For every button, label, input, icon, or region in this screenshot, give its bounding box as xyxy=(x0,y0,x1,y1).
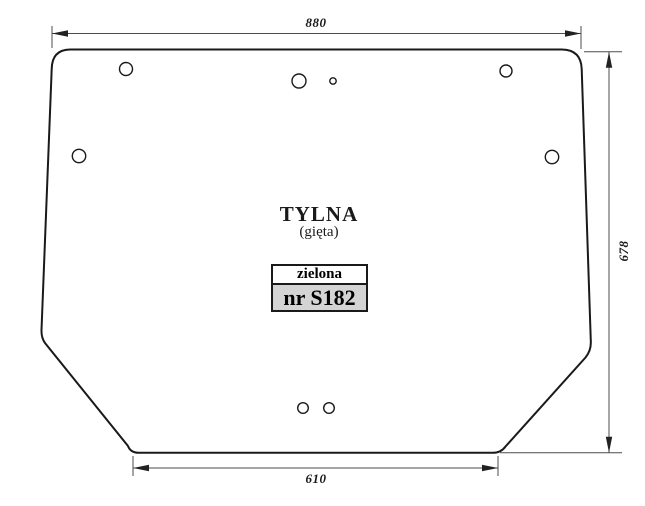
technical-drawing-page: 880 678 610 TYLNA (gięta) zielona nr S18… xyxy=(0,0,645,506)
mounting-hole xyxy=(298,403,309,414)
mounting-hole xyxy=(545,150,558,163)
dimension-width-bottom: 610 xyxy=(276,471,356,487)
mounting-hole xyxy=(500,65,512,77)
dimension-width-top: 880 xyxy=(276,15,356,31)
mounting-hole xyxy=(330,78,336,84)
pane-subtitle: (gięta) xyxy=(234,224,404,241)
mounting-hole xyxy=(292,74,306,88)
mounting-hole xyxy=(120,63,133,76)
spec-box: zielona nr S182 xyxy=(271,264,368,312)
dimension-height-right: 678 xyxy=(616,211,632,291)
glass-pane-outline xyxy=(41,50,590,453)
spec-part-number: nr S182 xyxy=(273,285,366,310)
mounting-hole xyxy=(72,149,85,162)
glass-pane-drawing xyxy=(0,0,645,506)
mounting-hole xyxy=(324,403,335,414)
spec-color-name: zielona xyxy=(273,266,366,285)
